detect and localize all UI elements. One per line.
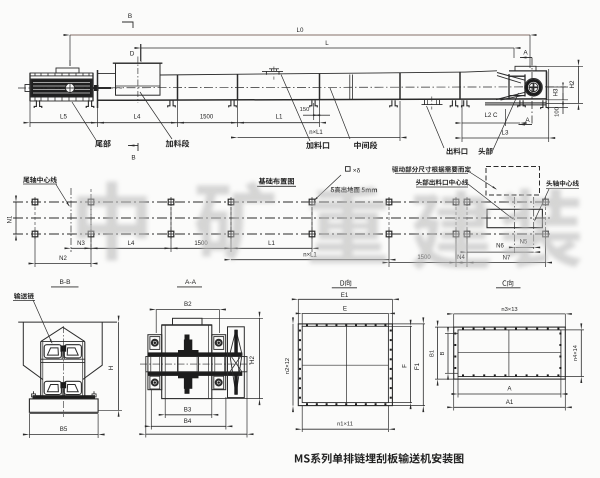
svg-text:L: L xyxy=(325,40,329,47)
svg-text:A1: A1 xyxy=(506,399,514,406)
svg-text:H2: H2 xyxy=(569,80,576,88)
svg-text:n1×11: n1×11 xyxy=(337,421,353,427)
svg-text:B: B xyxy=(440,351,446,355)
svg-text:B: B xyxy=(128,13,132,20)
svg-text:A-A: A-A xyxy=(185,279,197,286)
svg-text:B3: B3 xyxy=(184,407,192,414)
svg-text:H3: H3 xyxy=(554,88,560,96)
svg-text:B1: B1 xyxy=(429,350,435,357)
svg-text:150: 150 xyxy=(300,107,310,113)
svg-text:N6: N6 xyxy=(496,244,504,250)
svg-text:×δ: ×δ xyxy=(353,168,361,175)
svg-text:F1: F1 xyxy=(414,362,421,370)
svg-text:L4: L4 xyxy=(128,241,135,247)
svg-text:H: H xyxy=(108,366,115,370)
svg-text:N7: N7 xyxy=(503,256,511,262)
svg-text:n3×13: n3×13 xyxy=(501,307,517,313)
svg-text:F: F xyxy=(402,364,409,368)
svg-text:B4: B4 xyxy=(184,418,192,425)
svg-text:n×L1: n×L1 xyxy=(309,130,323,136)
svg-text:L2 C: L2 C xyxy=(484,112,498,119)
svg-text:1500: 1500 xyxy=(200,115,214,121)
svg-text:B: B xyxy=(131,155,135,162)
svg-text:N2: N2 xyxy=(59,256,67,262)
svg-text:100: 100 xyxy=(555,107,561,117)
svg-text:n2×12: n2×12 xyxy=(285,358,291,374)
svg-text:L4: L4 xyxy=(134,114,141,121)
svg-text:N3: N3 xyxy=(77,241,85,247)
svg-text:A: A xyxy=(523,50,528,57)
svg-text:B2: B2 xyxy=(184,301,192,308)
svg-text:E1: E1 xyxy=(341,292,349,299)
svg-text:n4×14: n4×14 xyxy=(573,345,579,361)
svg-text:L0: L0 xyxy=(297,27,304,34)
svg-text:L1: L1 xyxy=(276,114,283,121)
svg-text:L5: L5 xyxy=(60,114,67,121)
svg-text:L3: L3 xyxy=(502,130,509,137)
svg-text:B5: B5 xyxy=(60,426,68,433)
svg-text:L1: L1 xyxy=(268,241,275,247)
svg-text:N1: N1 xyxy=(8,215,14,223)
svg-text:E: E xyxy=(343,305,347,312)
svg-text:H2: H2 xyxy=(249,355,256,363)
svg-text:D: D xyxy=(130,51,135,58)
svg-text:B-B: B-B xyxy=(60,279,72,286)
